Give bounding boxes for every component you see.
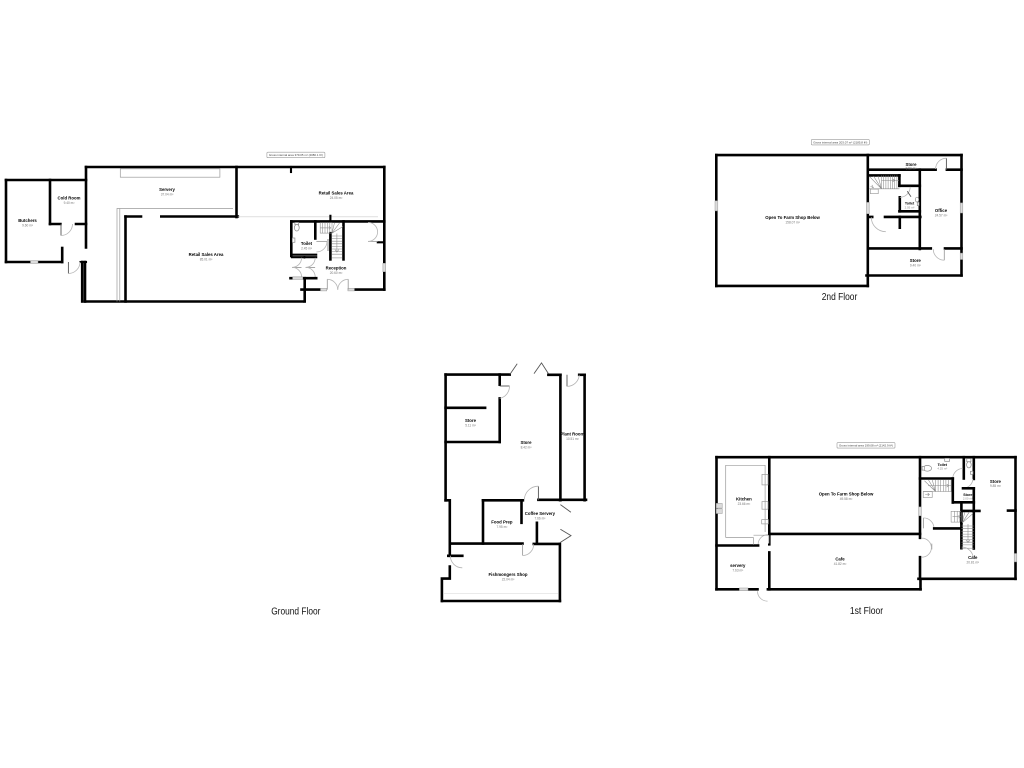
svg-text:2.05 m²: 2.05 m² xyxy=(905,205,915,209)
svg-text:158.07 m²: 158.07 m² xyxy=(785,221,799,225)
svg-text:9.50 m²: 9.50 m² xyxy=(906,167,917,171)
svg-text:4.25 m²: 4.25 m² xyxy=(937,467,947,471)
svg-text:Store: Store xyxy=(465,418,477,423)
svg-text:Store: Store xyxy=(521,440,533,445)
svg-text:5.11 m²: 5.11 m² xyxy=(465,424,476,428)
svg-text:Cafe: Cafe xyxy=(835,557,845,562)
svg-text:Plant Room: Plant Room xyxy=(560,432,584,437)
svg-text:41.82 m²: 41.82 m² xyxy=(834,562,847,566)
svg-text:Toilet: Toilet xyxy=(301,241,313,246)
svg-text:85.01 m²: 85.01 m² xyxy=(200,258,213,262)
svg-text:10.51 m²: 10.51 m² xyxy=(566,437,579,441)
svg-text:20.81 m²: 20.81 m² xyxy=(967,560,980,564)
svg-text:2.00 m²: 2.00 m² xyxy=(963,497,973,501)
svg-text:Retail Sales Area: Retail Sales Area xyxy=(319,191,354,196)
svg-text:2.45 m²: 2.45 m² xyxy=(301,247,312,251)
svg-text:2nd Floor: 2nd Floor xyxy=(822,291,858,303)
svg-text:1st Floor: 1st Floor xyxy=(850,605,884,617)
svg-text:24.05 m²: 24.05 m² xyxy=(330,196,343,200)
svg-text:7.95 m²: 7.95 m² xyxy=(496,525,507,529)
svg-text:Open To Farm Shop Below: Open To Farm Shop Below xyxy=(765,215,820,220)
svg-text:8.42 m²: 8.42 m² xyxy=(521,446,532,450)
svg-text:Cold Room: Cold Room xyxy=(58,196,81,201)
svg-text:Ground Floor: Ground Floor xyxy=(271,606,321,618)
svg-text:24.57 m²: 24.57 m² xyxy=(935,214,948,218)
svg-text:7.66 m²: 7.66 m² xyxy=(534,516,545,520)
svg-text:servery: servery xyxy=(730,563,746,568)
svg-text:Butchers: Butchers xyxy=(18,218,37,223)
svg-text:Office: Office xyxy=(935,208,948,213)
svg-text:Gross internal area 203.07 m²: Gross internal area 203.07 m² (2185.8 ft… xyxy=(813,140,867,144)
svg-text:23.66 m²: 23.66 m² xyxy=(738,502,751,506)
svg-text:Fishmongers Shop: Fishmongers Shop xyxy=(489,572,528,577)
svg-text:Retail Sales Area: Retail Sales Area xyxy=(189,252,224,257)
svg-text:9.85 m²: 9.85 m² xyxy=(990,484,1001,488)
svg-text:9.40 m²: 9.40 m² xyxy=(64,201,75,205)
svg-text:Cafe: Cafe xyxy=(968,555,978,560)
svg-text:37.04 m²: 37.04 m² xyxy=(161,193,174,197)
svg-text:9.40 m²: 9.40 m² xyxy=(910,263,921,267)
svg-text:Kitchen: Kitchen xyxy=(736,497,752,502)
svg-text:Coffee Servery: Coffee Servery xyxy=(525,511,556,516)
svg-text:7.63 m²: 7.63 m² xyxy=(732,569,743,573)
svg-text:Reception: Reception xyxy=(326,266,347,271)
svg-text:22.04 m²: 22.04 m² xyxy=(502,578,515,582)
svg-text:Food Prep: Food Prep xyxy=(491,519,513,524)
svg-text:Gross internal area 379.05 m²: Gross internal area 379.05 m² (4080.1 ft… xyxy=(269,153,323,157)
svg-text:Store: Store xyxy=(990,479,1002,484)
svg-text:Gross internal area 199.08 m²: Gross internal area 199.08 m² (2142.9 ft… xyxy=(839,444,893,448)
svg-text:Store: Store xyxy=(910,258,922,263)
svg-text:49.58 m²: 49.58 m² xyxy=(840,497,853,501)
svg-text:Open To Farm Shop Below: Open To Farm Shop Below xyxy=(819,491,874,496)
svg-text:9.60 m²: 9.60 m² xyxy=(22,224,33,228)
svg-text:Servery: Servery xyxy=(159,187,175,192)
svg-text:20.60 m²: 20.60 m² xyxy=(330,271,343,275)
